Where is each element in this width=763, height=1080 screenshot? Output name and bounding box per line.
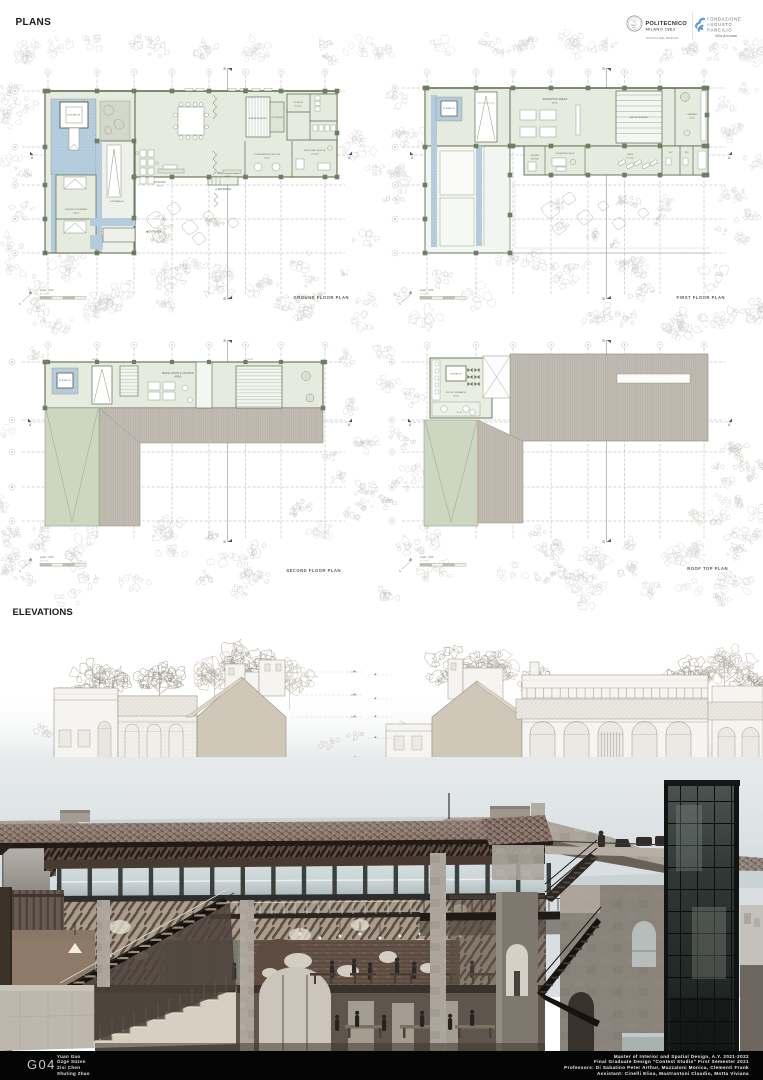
svg-text:CAFE: CAFE bbox=[627, 153, 634, 156]
svg-text:FIRST FLOOR PLAN: FIRST FLOOR PLAN bbox=[677, 295, 725, 300]
svg-text:ELEVATOR: ELEVATOR bbox=[443, 107, 455, 110]
svg-text:C: C bbox=[11, 450, 13, 454]
svg-text:B: B bbox=[603, 540, 606, 544]
svg-text:STORAGE: STORAGE bbox=[271, 116, 283, 119]
svg-text:A: A bbox=[411, 156, 414, 160]
svg-text:+9.45: +9.45 bbox=[456, 412, 463, 414]
svg-text:D: D bbox=[394, 145, 396, 149]
svg-text:N: N bbox=[19, 302, 21, 306]
svg-text:35m2: 35m2 bbox=[264, 157, 270, 159]
svg-text:GROUND FLOOR PLAN: GROUND FLOOR PLAN bbox=[294, 295, 350, 300]
svg-text:25.5m2: 25.5m2 bbox=[294, 105, 302, 107]
svg-text:A: A bbox=[14, 251, 16, 255]
svg-text:B: B bbox=[224, 67, 227, 71]
svg-text:B: B bbox=[224, 540, 227, 544]
svg-text:0 1 2 5m: 0 1 2 5m bbox=[420, 561, 429, 563]
svg-text:ROOF TOP PLAN: ROOF TOP PLAN bbox=[687, 566, 728, 571]
svg-text:B: B bbox=[394, 217, 396, 221]
svg-text:0 1 2 5m: 0 1 2 5m bbox=[420, 294, 429, 296]
svg-text:TOILETS: TOILETS bbox=[293, 102, 303, 104]
svg-text:ROOF TERRACE: ROOF TERRACE bbox=[446, 391, 466, 394]
svg-text:C: C bbox=[394, 183, 396, 187]
svg-text:BEDTIME OFFICE: BEDTIME OFFICE bbox=[304, 150, 325, 152]
svg-text:B: B bbox=[391, 485, 393, 489]
svg-text:scale : 1/50: scale : 1/50 bbox=[40, 288, 54, 292]
svg-text:AREA: AREA bbox=[174, 375, 181, 378]
svg-text:C: C bbox=[391, 450, 393, 454]
svg-text:D: D bbox=[11, 418, 13, 422]
svg-text:+6.20: +6.20 bbox=[247, 359, 254, 361]
svg-text:E: E bbox=[391, 360, 393, 364]
svg-text:A: A bbox=[391, 519, 393, 523]
svg-text:A': A' bbox=[728, 156, 731, 160]
svg-text:MEDIA ROOM & ARCHIVE: MEDIA ROOM & ARCHIVE bbox=[162, 372, 194, 375]
svg-text:ROOM: ROOM bbox=[531, 158, 538, 160]
svg-text:E: E bbox=[11, 360, 13, 364]
svg-text:A: A bbox=[394, 251, 396, 255]
svg-text:B: B bbox=[603, 297, 606, 301]
svg-text:A: A bbox=[31, 156, 34, 160]
svg-text:DINING: DINING bbox=[531, 155, 540, 157]
svg-text:A': A' bbox=[728, 423, 731, 427]
svg-text:CATERING 35m2: CATERING 35m2 bbox=[556, 152, 576, 155]
svg-text:A: A bbox=[11, 519, 13, 523]
svg-text:ELEVATOR: ELEVATOR bbox=[59, 379, 71, 382]
svg-text:C: C bbox=[14, 183, 16, 187]
svg-text:D: D bbox=[14, 145, 16, 149]
svg-text:ELEVATOR: ELEVATOR bbox=[450, 373, 462, 376]
svg-text:WC: WC bbox=[669, 152, 673, 154]
svg-text:90m2: 90m2 bbox=[157, 186, 163, 188]
svg-text:CONFERENCE ROOM: CONFERENCE ROOM bbox=[254, 154, 280, 156]
svg-text:A': A' bbox=[348, 423, 351, 427]
svg-text:N: N bbox=[399, 302, 401, 306]
svg-text:B: B bbox=[603, 67, 606, 71]
svg-text:scale : 1/50: scale : 1/50 bbox=[420, 288, 434, 292]
svg-text:A': A' bbox=[348, 156, 351, 160]
svg-text:D: D bbox=[391, 418, 393, 422]
svg-text:0 1 2 5m: 0 1 2 5m bbox=[40, 561, 49, 563]
svg-text:126m2: 126m2 bbox=[72, 213, 80, 215]
svg-text:88m2: 88m2 bbox=[552, 102, 558, 104]
svg-text:52m2: 52m2 bbox=[689, 117, 695, 119]
svg-text:B: B bbox=[11, 485, 13, 489]
svg-text:B: B bbox=[224, 339, 227, 343]
svg-text:B: B bbox=[603, 339, 606, 343]
svg-text:57.5m2: 57.5m2 bbox=[626, 157, 634, 159]
svg-text:EXHIBITION AREA: EXHIBITION AREA bbox=[65, 208, 87, 211]
svg-text:E: E bbox=[394, 86, 396, 90]
svg-text:ENTRANCE: ENTRANCE bbox=[110, 200, 124, 203]
svg-text:WC: WC bbox=[685, 152, 689, 154]
svg-text:◀ ENTRANCE: ◀ ENTRANCE bbox=[146, 231, 162, 234]
svg-text:B: B bbox=[224, 297, 227, 301]
svg-text:LIBRARY: LIBRARY bbox=[687, 113, 698, 116]
svg-text:77m2: 77m2 bbox=[453, 395, 459, 397]
svg-text:scale : 1/50: scale : 1/50 bbox=[40, 555, 54, 559]
svg-text:AMPHITHEATRE: AMPHITHEATRE bbox=[249, 117, 267, 120]
svg-text:A: A bbox=[409, 423, 412, 427]
svg-text:AMPHITHEATRE: AMPHITHEATRE bbox=[630, 116, 648, 119]
svg-text:N: N bbox=[399, 569, 401, 573]
svg-text:ELEVATOR: ELEVATOR bbox=[68, 114, 81, 117]
svg-text:SECOND FLOOR PLAN: SECOND FLOOR PLAN bbox=[286, 568, 341, 573]
svg-text:28.4m2: 28.4m2 bbox=[311, 153, 319, 155]
svg-text:▲ ENTRANCE: ▲ ENTRANCE bbox=[215, 188, 232, 191]
svg-text:OFFICES: OFFICES bbox=[154, 182, 166, 184]
svg-text:N: N bbox=[19, 569, 21, 573]
svg-text:0 1 2 5m: 0 1 2 5m bbox=[40, 294, 49, 296]
svg-text:scale : 1/50: scale : 1/50 bbox=[420, 555, 434, 559]
svg-text:WORKSHOP AREAS: WORKSHOP AREAS bbox=[543, 98, 568, 101]
svg-text:A: A bbox=[29, 423, 32, 427]
svg-text:E: E bbox=[14, 89, 16, 93]
svg-text:B: B bbox=[14, 217, 16, 221]
